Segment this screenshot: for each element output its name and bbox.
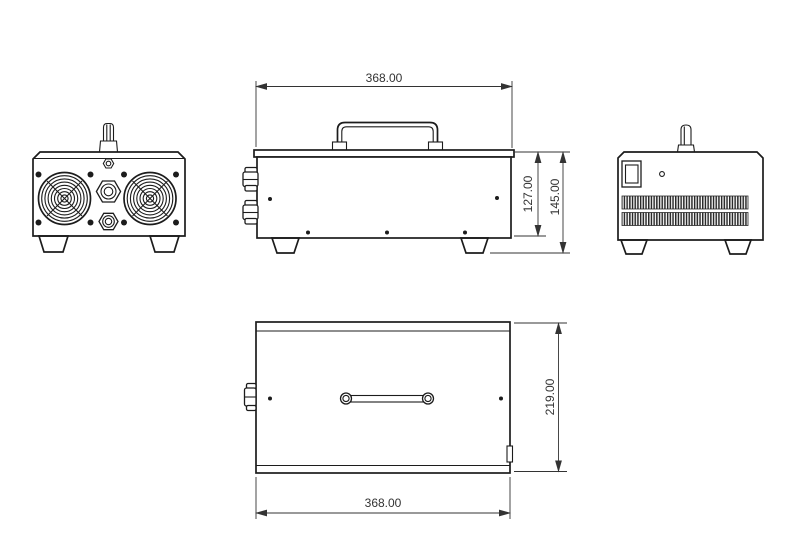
dim-label-side-width: 368.00 <box>366 71 403 85</box>
dim-label-depth: 219.00 <box>543 378 557 415</box>
dim-label-overall-height: 145.00 <box>548 178 562 215</box>
dim-label-bottom-width: 368.00 <box>365 496 402 510</box>
top-view: 219.00 368.00 <box>245 322 568 519</box>
screw <box>306 231 310 235</box>
dimension-bottom-width: 368.00 <box>256 477 510 519</box>
foot-left <box>272 238 299 253</box>
side-connector-lower <box>243 201 258 225</box>
foot-right <box>461 238 488 253</box>
fan-screw <box>121 220 127 226</box>
foot-right <box>725 240 751 254</box>
fan-screw <box>88 220 94 226</box>
fan-screw <box>173 220 179 226</box>
foot-left <box>621 240 647 254</box>
antenna-front <box>100 124 118 153</box>
foot-left <box>39 236 68 252</box>
screw <box>499 397 503 401</box>
screw <box>495 196 499 200</box>
side-connector-upper <box>243 168 258 192</box>
hex-connector-large <box>96 181 120 202</box>
lid-side <box>254 150 514 157</box>
antenna-back <box>678 125 695 152</box>
carry-handle-side <box>333 123 443 151</box>
power-switch <box>622 161 641 187</box>
fan-screw <box>36 220 42 226</box>
dim-label-body-height: 127.00 <box>521 175 535 212</box>
orthographic-views-drawing: 368.00 127.00 145.00 <box>0 0 795 558</box>
screw <box>268 197 272 201</box>
side-panel-outline <box>257 157 511 238</box>
screw <box>268 397 272 401</box>
fan-screw <box>121 172 127 178</box>
screw <box>385 231 389 235</box>
edge-latch <box>507 446 513 462</box>
top-connector <box>245 384 257 411</box>
fan-screw <box>36 172 42 178</box>
foot-right <box>150 236 179 252</box>
technical-drawing-canvas: 368.00 127.00 145.00 <box>0 0 795 558</box>
front-view <box>33 124 185 253</box>
fan-screw <box>173 172 179 178</box>
back-view <box>618 125 763 254</box>
screw <box>463 231 467 235</box>
dimension-depth: 219.00 <box>514 323 567 472</box>
dimension-side-width: 368.00 <box>256 71 512 148</box>
antenna-mount-nut <box>103 159 113 168</box>
side-view: 368.00 127.00 145.00 <box>243 71 570 253</box>
fan-screw <box>88 172 94 178</box>
hex-connector-small <box>99 213 118 229</box>
